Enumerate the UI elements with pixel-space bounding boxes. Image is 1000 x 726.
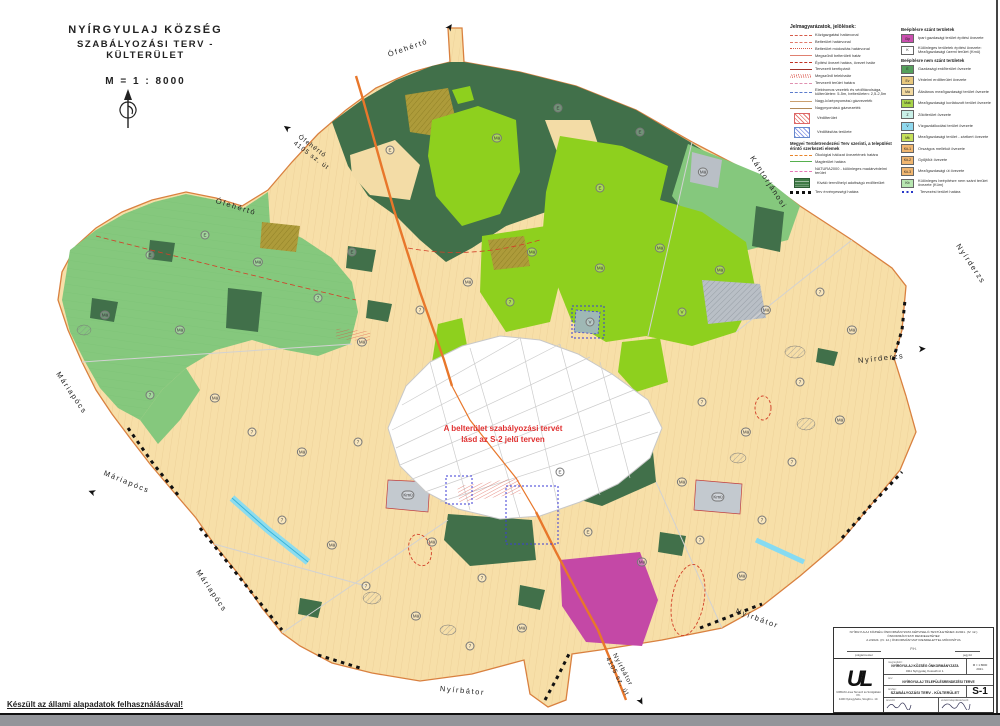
zone-code-marker: E <box>201 231 210 240</box>
legend-symbols-column: Jelmagyarázatok, jelölések: Közigazgatás… <box>790 24 897 197</box>
legend-item: Belterület határvonal <box>790 40 897 44</box>
zone-code-marker: Má <box>463 278 473 287</box>
company-logo: UL <box>847 670 870 689</box>
approval-line2: A 2/2024. (IV. 12.) ÖNKORMÁNYZATI RENDEL… <box>837 638 990 642</box>
legend-item-label: Tervezett terület határa <box>815 81 855 85</box>
line-gaz2-symbol <box>790 108 812 109</box>
legend-zone-item: KKülönleges területek építési övezete: M… <box>901 46 995 55</box>
zone-color-box: Z <box>901 110 914 119</box>
base-data-footnote: Készült az állami alapadatok felhasználá… <box>4 699 186 710</box>
legend-item-label: Országos mellékút övezete <box>918 147 965 151</box>
legend-zone-item: VVízgazdálkodási terület övezete <box>901 122 995 131</box>
legend-zone-item: GipIpari gazdasági terület építési öveze… <box>901 34 995 43</box>
legend-zone-item: ZZöldterület övezete <box>901 110 995 119</box>
zone-code-marker: 7 <box>416 306 425 315</box>
legend-item-label: Ökológiai hálózat övezetének határa <box>815 153 878 157</box>
legend-item: Építési övezet határa, övezet határ <box>790 61 897 65</box>
legend-zone-item: KbKülönleges beépítésre nem szánt terüle… <box>901 179 995 188</box>
legend-item: NATURA2000 - különleges madárvédelmi ter… <box>790 167 897 176</box>
legend-item-label: Gazdasági erdőterület övezete <box>918 67 971 71</box>
legend-item-label: Zöldterület övezete <box>918 113 951 117</box>
zone-code-marker: Má <box>847 326 857 335</box>
zone-code-marker: Má <box>677 478 687 487</box>
zone-code-marker: Má <box>210 394 220 403</box>
zone-code-marker: Má <box>835 416 845 425</box>
box-green-e-symbol <box>794 178 810 188</box>
solid-darkred-symbol <box>790 69 812 70</box>
legend-item-label: Mezőgazdasági korlátozott terület övezet… <box>918 101 991 105</box>
zone-code-marker: 7 <box>248 428 257 437</box>
legend-item-label: Közigazgatási határvonal <box>815 33 858 37</box>
zone-code-marker: 7 <box>354 438 363 447</box>
dashdot2-red-symbol <box>790 62 812 63</box>
box-hatch-blue-symbol <box>794 127 810 138</box>
zone-code-marker: 7 <box>278 516 287 525</box>
legend-item: Kiváló termőhelyi adottságú erdőterület <box>790 178 897 188</box>
zone-code-marker: Má <box>737 572 747 581</box>
zone-code-marker: E <box>348 248 357 257</box>
zone-code-marker: E <box>556 468 565 477</box>
legend-zone-item: Kö-3Mezőgazdasági út övezete <box>901 167 995 176</box>
zone-code-marker: V <box>586 318 595 327</box>
legend-item: Védőfásítás területe <box>790 127 897 138</box>
zone-color-box: Gip <box>901 34 914 43</box>
sheet-title: SZABÁLYOZÁSI TERV - KÜLTERÜLET <box>886 691 964 696</box>
line-gaz-symbol <box>790 101 812 102</box>
zone-code-marker: V <box>678 308 687 317</box>
plan-scale: M = 1 : 8000 <box>38 76 253 87</box>
legend-item-label: Elektromos vezeték és védőtávolsága, kül… <box>815 88 897 97</box>
legend-zones-column: Beépítésre szánt területekGipIpari gazda… <box>901 24 995 197</box>
sheet-number: S-1 <box>972 686 988 697</box>
zone-code-marker: 7 <box>506 298 515 307</box>
zone-code-marker: Má <box>253 258 263 267</box>
zone-code-marker: Má <box>427 538 437 547</box>
zone-code-marker: 7 <box>816 288 825 297</box>
signature-scribble-icon <box>886 702 912 710</box>
box-hatch-red-symbol <box>794 113 810 124</box>
legend-item: Elektromos vezeték és védőtávolsága, kül… <box>790 88 897 97</box>
window-bottom-bar <box>0 713 1000 726</box>
zone-color-box: Kö-3 <box>901 167 914 176</box>
zone-code-marker: 7 <box>314 294 323 303</box>
legend-item-label: Tervezési terület határa <box>920 190 960 194</box>
company-logo-cell: UL URBAN Linea Tervező és Szolgáltató Kf… <box>834 659 884 712</box>
dash-blue-symbol <box>790 92 812 93</box>
legend-item: Nagynyomású gázvezeték <box>790 106 897 110</box>
zone-code-marker: Má <box>527 248 537 257</box>
zone-code-marker: 7 <box>146 391 155 400</box>
zone-code-marker: E <box>596 184 605 193</box>
legend-item-label: Ipari gazdasági terület építési övezete <box>918 36 984 40</box>
zone-code-marker: E <box>386 146 395 155</box>
zone-code-marker: 7 <box>758 516 767 525</box>
legend-item-label: Nagynyomású gázvezeték <box>815 106 861 110</box>
signature-scribble-icon <box>941 702 971 710</box>
date-value: 2021. <box>976 667 983 671</box>
legend-zone-item: MkMezőgazdasági terület - zártkert öveze… <box>901 133 995 142</box>
legend-item-label: Védelmi erdőterület övezete <box>918 78 966 82</box>
seal-placeholder: P.H. <box>837 647 990 651</box>
legend-item-label: Megszűnő telekhatár <box>815 74 851 78</box>
zone-code-marker: E <box>554 104 563 113</box>
legend-item-label: Mezőgazdasági terület - zártkert övezete <box>918 135 988 139</box>
dashdot-red-symbol <box>790 35 812 36</box>
legend-zone-item: MákMezőgazdasági korlátozott terület öve… <box>901 99 995 108</box>
builtup-area-note-line2: lásd az S-2 jelű terven <box>413 435 593 446</box>
zone-code-marker: Má <box>492 134 502 143</box>
notary-signature-label: jegyző <box>955 651 980 657</box>
legend-item-label: Gyűjtőút övezete <box>918 158 947 162</box>
title-block: NYÍRGYULAJ KÖZSÉG ÖNKORMÁNYZATA KÉPVISEL… <box>833 627 994 713</box>
zone-code-marker: Má <box>297 448 307 457</box>
zone-color-box: Kö-1 <box>901 144 914 153</box>
zone-color-box: Má <box>901 87 914 96</box>
legend-section-header: Megyei Területrendezési Terv szerinti, a… <box>790 141 897 151</box>
zone-code-marker: Má <box>715 266 725 275</box>
company-address: 4400 Nyíregyháza, Szegfű u. 10. <box>836 698 881 702</box>
zone-code-marker: 7 <box>788 458 797 467</box>
zone-color-box: Ev <box>901 76 914 85</box>
legend-item-label: Kiváló termőhelyi adottságú erdőterület <box>817 181 884 185</box>
legend-zone-item: Kö-1Országos mellékút övezete <box>901 144 995 153</box>
zone-code-marker: E <box>636 128 645 137</box>
squares-black-symbol <box>790 191 812 194</box>
arrow-east-icon: ➤ <box>918 344 927 356</box>
legend-item: Belterület módosítás határvonal <box>790 47 897 51</box>
legend-item-label: Különleges területek építési övezete: Me… <box>918 46 995 55</box>
legend-item: Tervezett terület határa <box>790 81 897 85</box>
dash-pink-symbol <box>790 83 812 84</box>
legend-zone-item: Kö-2Gyűjtőút övezete <box>901 156 995 165</box>
zone-code-marker: 7 <box>466 642 475 651</box>
legend-zone-item: MáÁltalános mezőgazdasági terület övezet… <box>901 87 995 96</box>
legend-item: Védőterület <box>790 113 897 124</box>
legend-zone-item: EGazdasági erdőterület övezete <box>901 65 995 74</box>
legend-item: Közigazgatási határvonal <box>790 33 897 37</box>
legend-item-label: Magterület határa <box>815 160 846 164</box>
solid-green-symbol <box>790 161 812 162</box>
zone-color-box: Mk <box>901 133 914 142</box>
legend-item-label: NATURA2000 - különleges madárvédelmi ter… <box>815 167 897 176</box>
zone-code-marker: Má <box>761 306 771 315</box>
legend-section-header: Beépítésre szánt területek <box>901 27 995 32</box>
zone-code-marker: 7 <box>696 536 705 545</box>
legend-item-label: Terv érvényességi határa <box>815 190 858 194</box>
zone-code-marker: Má <box>698 168 708 177</box>
zone-code-marker: 7 <box>478 574 487 583</box>
zone-code-marker: Má <box>637 558 647 567</box>
legend-zone-item: Tervezési terület határa <box>901 190 995 194</box>
zone-color-box: Kb <box>901 179 914 188</box>
company-name: URBAN Linea Tervező és Szolgáltató Kft. <box>836 691 881 698</box>
dots-blue-symbol <box>902 191 916 193</box>
approval-section: NYÍRGYULAJ KÖZSÉG ÖNKORMÁNYZATA KÉPVISEL… <box>834 628 993 659</box>
zone-code-marker: 7 <box>362 582 371 591</box>
legend-item-label: Építési övezet határa, övezet határ <box>815 61 875 65</box>
zone-color-box: K <box>901 46 914 55</box>
zone-code-marker: Kmü <box>711 493 724 502</box>
legend-item: Nagy-középnyomású gázvezeték <box>790 99 897 103</box>
zone-code-marker: E <box>146 251 155 260</box>
zone-color-box: Kö-2 <box>901 156 914 165</box>
legend-item-label: Megszűnő belterületi határ <box>815 54 861 58</box>
mayor-signature-label: polgármester <box>847 651 881 657</box>
plan-title-line2: SZABÁLYOZÁSI TERV - KÜLTERÜLET <box>38 39 253 61</box>
legend-item-label: Mezőgazdasági út övezete <box>918 169 964 173</box>
zone-code-marker: Má <box>327 541 337 550</box>
legend-item-label: Belterület határvonal <box>815 40 851 44</box>
zone-code-marker: Má <box>517 624 527 633</box>
legend-item: Megszűnő telekhatár <box>790 74 897 78</box>
zone-code-marker: Má <box>357 338 367 347</box>
legend-item-label: Általános mezőgazdasági terület övezete <box>918 90 989 94</box>
builtup-area-note: A belterület szabályozási tervét lásd az… <box>413 424 593 446</box>
zone-code-marker: 7 <box>796 378 805 387</box>
legend-section-header: Beépítésre nem szánt területek <box>901 58 995 63</box>
zone-code-marker: Má <box>175 326 185 335</box>
legend-item-label: Vízgazdálkodási terület övezete <box>918 124 973 128</box>
north-arrow-icon <box>114 88 142 130</box>
plan-title-line1: NYÍRGYULAJ KÖZSÉG <box>38 24 253 36</box>
legend-title: Jelmagyarázatok, jelölések: <box>790 24 897 30</box>
hatch-red-symbol <box>790 74 812 78</box>
zone-color-box: Mák <box>901 99 914 108</box>
sheet-frame-right <box>996 0 998 715</box>
zone-code-marker: Má <box>595 264 605 273</box>
legend-item-label: Tervezett kerékpárút <box>815 67 850 71</box>
legend-item-label: Belterület módosítás határvonal <box>815 47 870 51</box>
legend-zone-item: EvVédelmi erdőterület övezete <box>901 76 995 85</box>
plan-sheet: EMáEMá7EEMáEEMáEMáMáMáMáMá7Má7Má7Má7VMá7… <box>0 0 1000 726</box>
legend-item-label: Védőterület <box>817 116 837 120</box>
dash-pink2-symbol <box>790 171 812 172</box>
dash-red-symbol <box>790 42 812 43</box>
plan-title: NYÍRGYULAJ KÖZSÉG SZABÁLYOZÁSI TERV - KÜ… <box>38 24 253 87</box>
zone-color-box: E <box>901 65 914 74</box>
legend-item: Ökológiai hálózat övezetének határa <box>790 153 897 157</box>
zone-color-box: V <box>901 122 914 131</box>
legend-item: Terv érvényességi határa <box>790 190 897 194</box>
legend: Jelmagyarázatok, jelölések: Közigazgatás… <box>790 24 995 197</box>
zone-code-marker: E <box>584 528 593 537</box>
legend-item: Megszűnő belterületi határ <box>790 54 897 58</box>
zone-code-marker: Kmü <box>401 491 414 500</box>
legend-item-label: Védőfásítás területe <box>817 130 852 134</box>
legend-item: Tervezett kerékpárút <box>790 67 897 71</box>
project-title: NYÍRGYULAJ TELEPÜLÉSRENDEZÉSI TERVE <box>886 680 991 684</box>
dashdot-orange-symbol <box>790 155 812 156</box>
zone-code-marker: Má <box>100 311 110 320</box>
dot-red-symbol <box>790 48 812 49</box>
solid-red-symbol <box>790 55 812 56</box>
client-address: 4311 Nyírgyulaj, Kossuth út 1. <box>886 669 964 673</box>
builtup-area-note-line1: A belterület szabályozási tervét <box>413 424 593 435</box>
zone-code-marker: 7 <box>698 398 707 407</box>
zone-code-marker: Má <box>411 612 421 621</box>
legend-item: Magterület határa <box>790 160 897 164</box>
legend-item-label: Nagy-középnyomású gázvezeték <box>815 99 872 103</box>
zone-code-marker: Má <box>741 428 751 437</box>
legend-item-label: Különleges beépítésre nem szánt terület … <box>918 179 995 188</box>
zone-code-marker: Má <box>655 244 665 253</box>
